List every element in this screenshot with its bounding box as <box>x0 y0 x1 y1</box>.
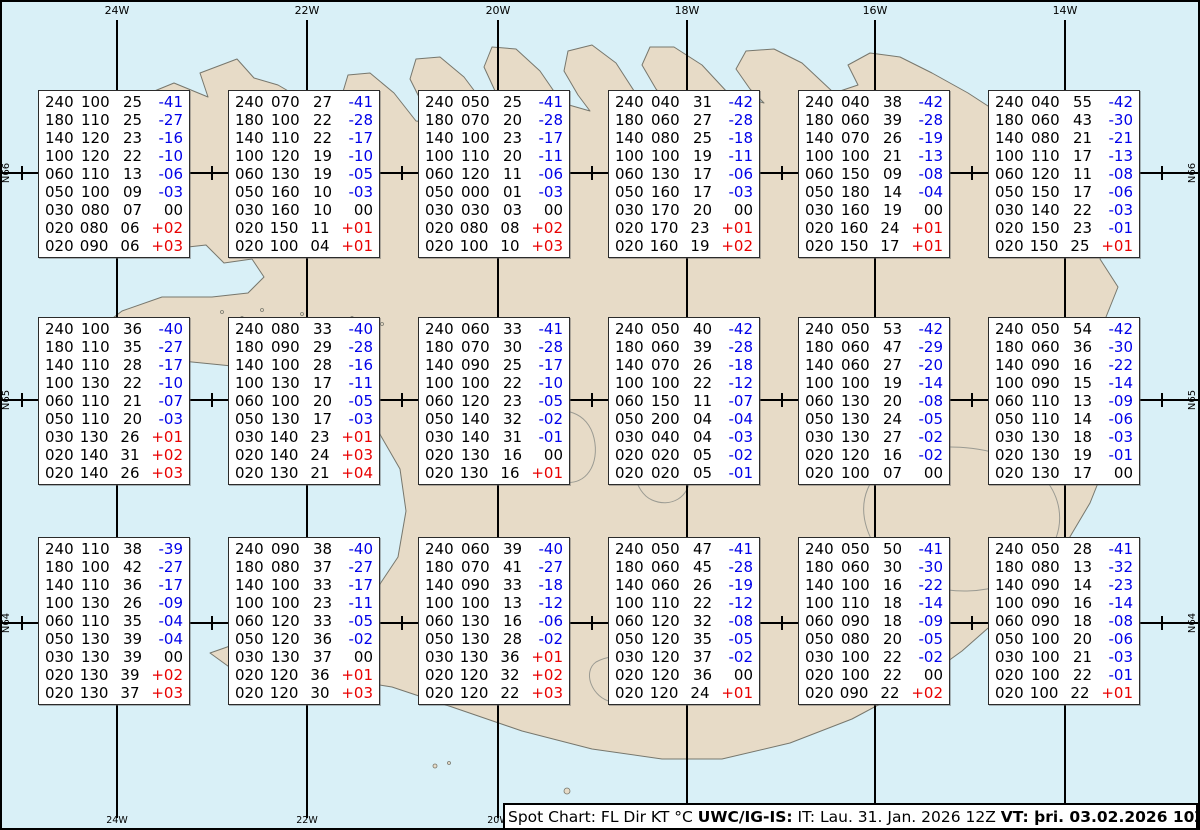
edge-labels-layer: 24W22W20W18W16W14WN66N66N65N65N64N6424W2… <box>2 2 1198 828</box>
longitude-label-bottom: 24W <box>99 815 135 826</box>
latitude-label-right: N64 <box>1187 606 1199 640</box>
longitude-label-bottom: 22W <box>289 815 325 826</box>
longitude-label-top: 22W <box>287 4 327 17</box>
latitude-label-left: N66 <box>1 156 13 190</box>
longitude-label-top: 24W <box>97 4 137 17</box>
longitude-label-top: 20W <box>478 4 518 17</box>
footer-info-bar: Spot Chart: FL Dir KT °C UWC/IG-IS: IT: … <box>503 803 1198 830</box>
latitude-label-right: N66 <box>1187 156 1199 190</box>
latitude-label-right: N65 <box>1187 383 1199 417</box>
longitude-label-top: 14W <box>1045 4 1085 17</box>
latitude-label-left: N65 <box>1 383 13 417</box>
footer-bold-text: UWC/IG-IS: <box>698 808 793 826</box>
longitude-label-top: 16W <box>855 4 895 17</box>
footer-bold-text: VT: þri. 03.02.2026 10Z <box>1001 808 1200 826</box>
latitude-label-left: N64 <box>1 606 13 640</box>
footer-text: IT: Lau. 31. Jan. 2026 12Z <box>793 808 1001 826</box>
longitude-label-top: 18W <box>667 4 707 17</box>
footer-text: Spot Chart: FL Dir KT °C <box>508 808 698 826</box>
spot-chart-canvas: 24010025-4118011025-2714012023-161001202… <box>0 0 1200 830</box>
